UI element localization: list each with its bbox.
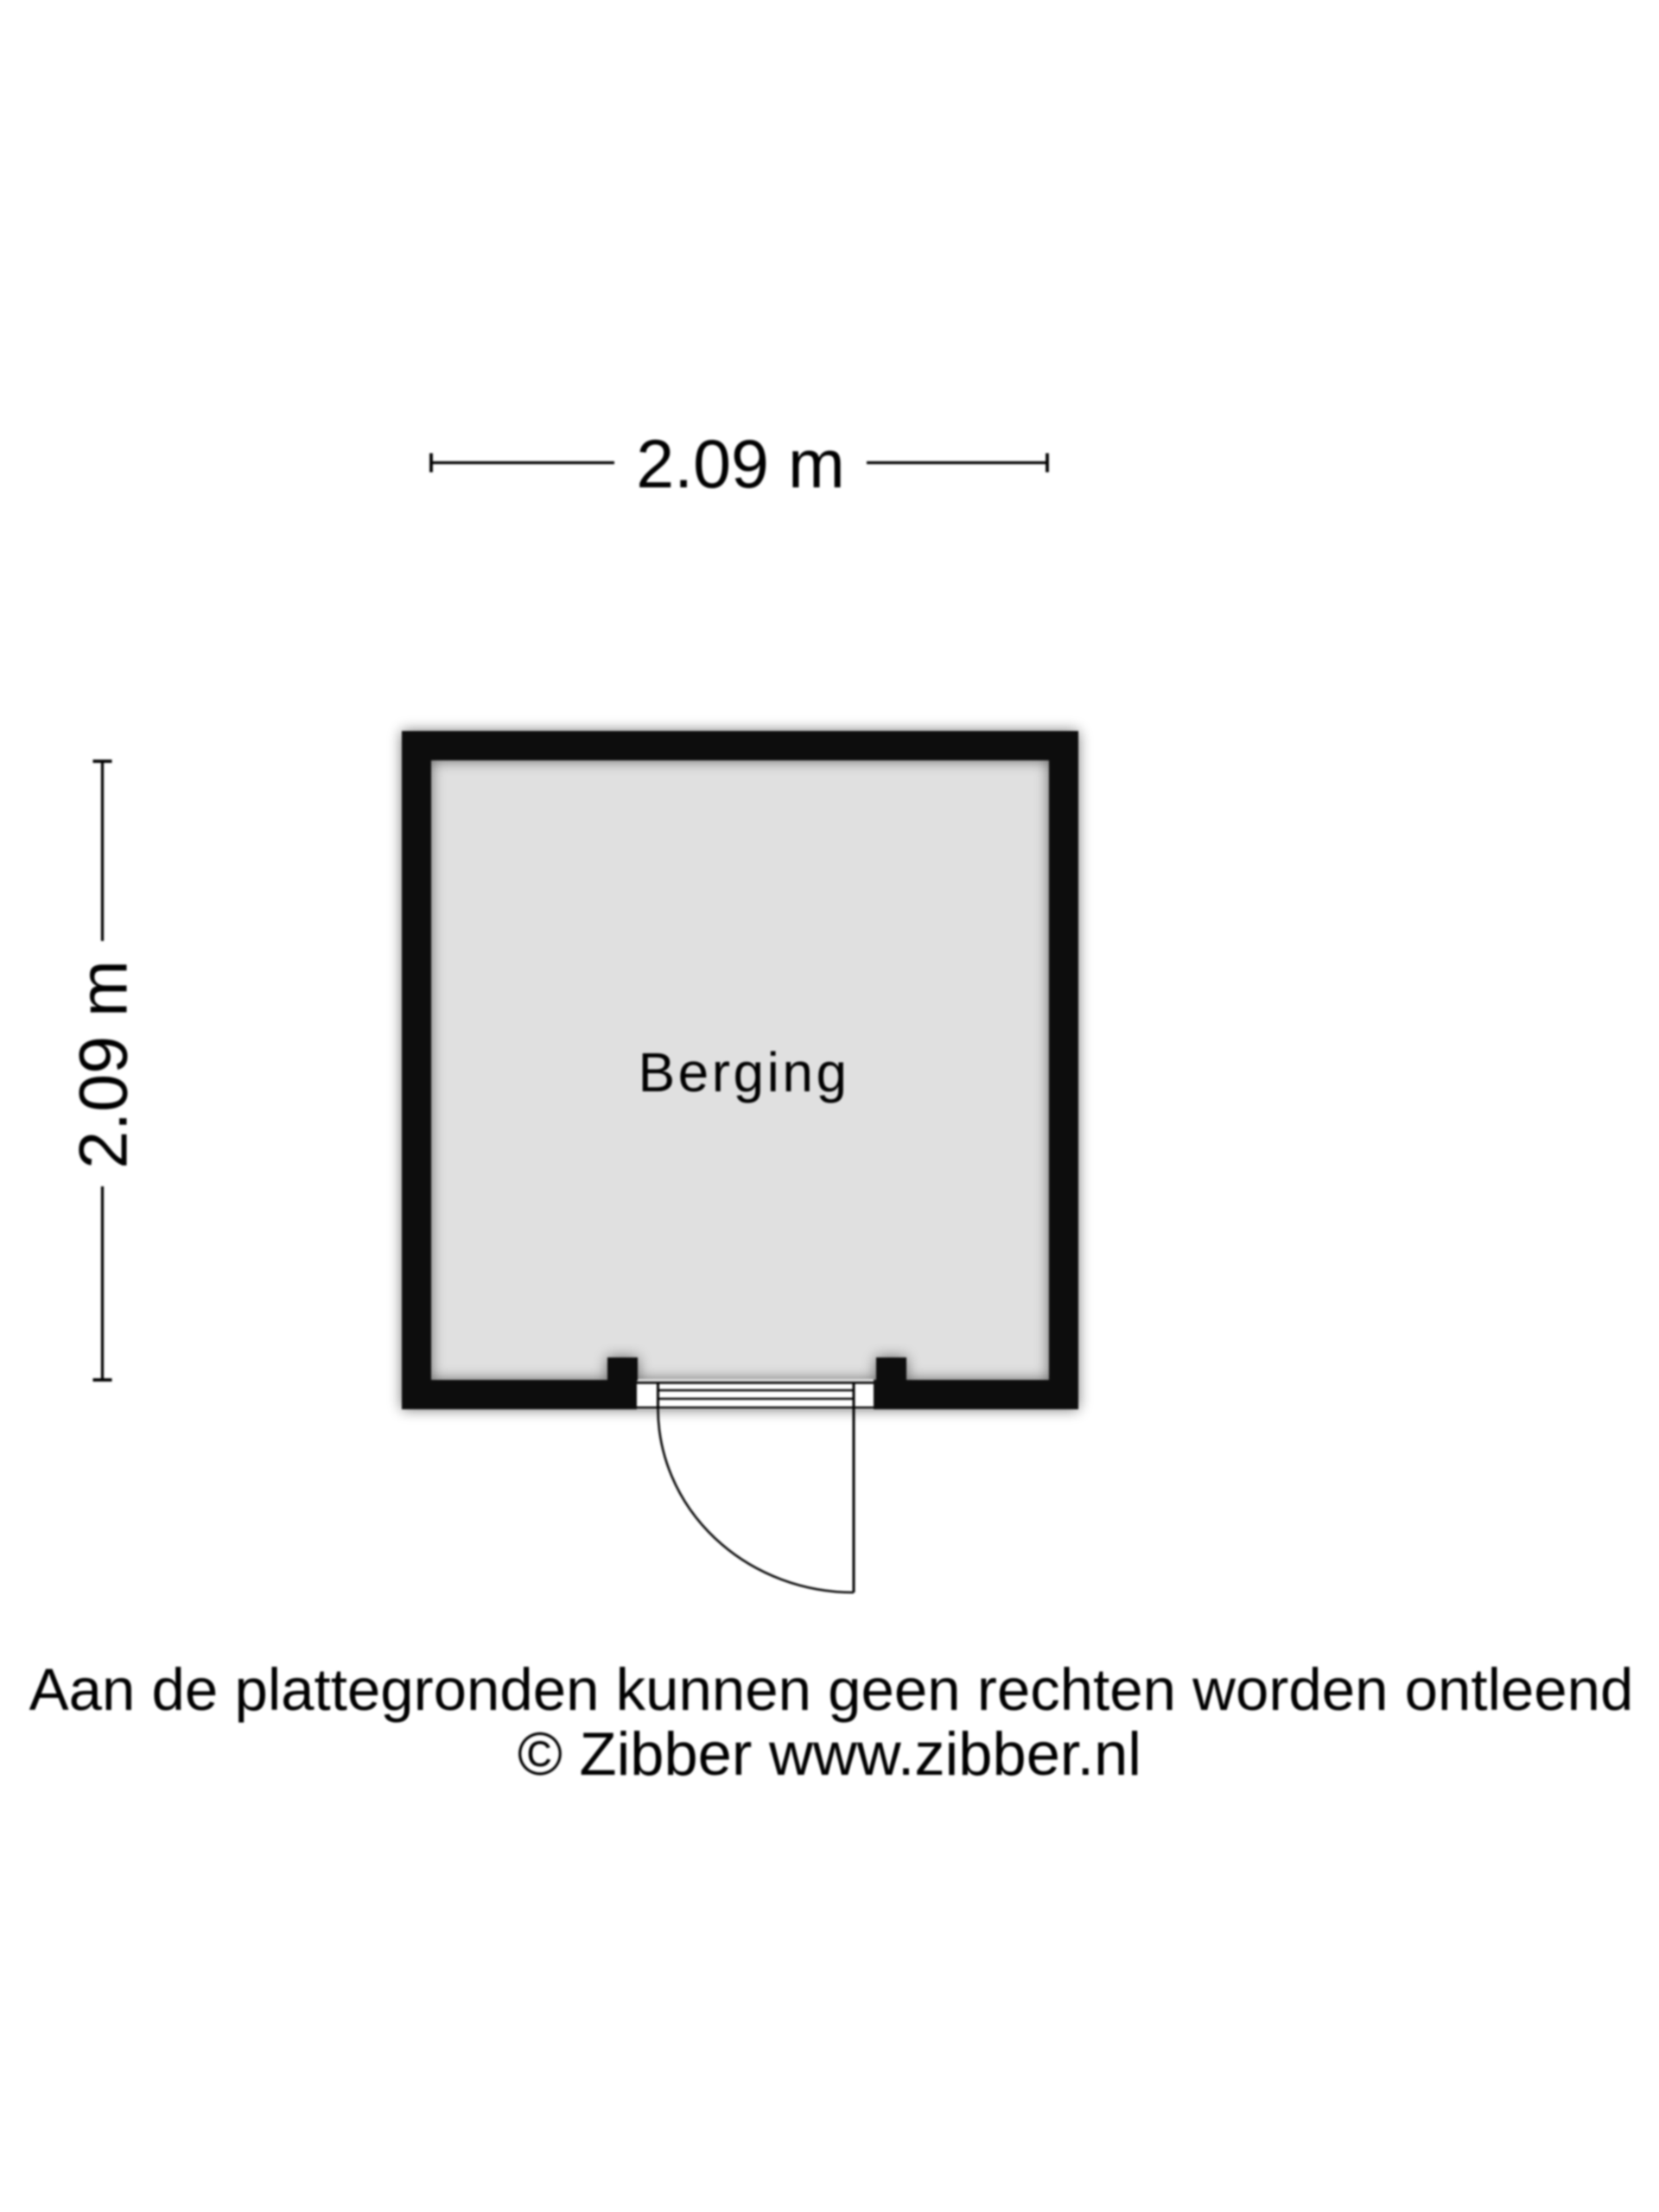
svg-text:Berging: Berging [638,1041,849,1103]
svg-text:2.09 m: 2.09 m [65,960,142,1169]
svg-text:© Zibber www.zibber.nl: © Zibber www.zibber.nl [518,1719,1141,1788]
svg-text:2.09 m: 2.09 m [636,425,845,502]
svg-text:Aan de plattegronden kunnen ge: Aan de plattegronden kunnen geen rechten… [29,1656,1634,1723]
